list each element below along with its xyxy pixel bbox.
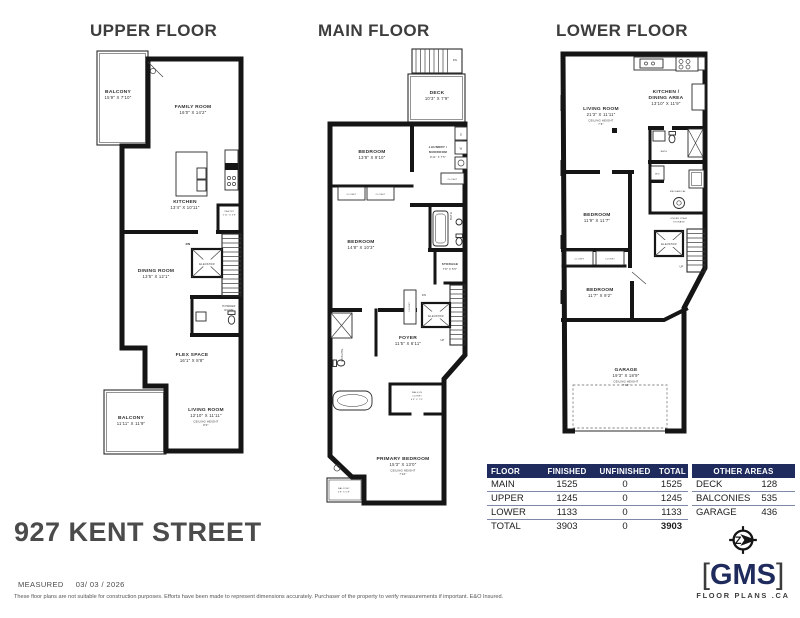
svg-text:11'7" X 9'2": 11'7" X 9'2" (588, 293, 612, 298)
disclaimer-text: These floor plans are not suitable for c… (14, 594, 503, 600)
header-cell: UNFINISHED (595, 464, 655, 478)
svg-text:STORAGE: STORAGE (673, 221, 685, 224)
room-label-under-stair-storage: UNDER STAIR (671, 217, 688, 220)
svg-text:CEILING HEIGHT: CEILING HEIGHT (193, 420, 218, 424)
main-floor-plan: DN (320, 45, 475, 510)
svg-text:2'11" X 3'8": 2'11" X 3'8" (223, 215, 236, 217)
table-row: UPPER 1245 0 1245 (487, 492, 688, 506)
svg-text:5'8" X 5'8": 5'8" X 5'8" (338, 492, 350, 494)
lower-floor-title: LOWER FLOOR (556, 21, 688, 41)
room-label-ensuite: ENSUITE (340, 348, 344, 361)
stairs-up-label: UP (440, 338, 444, 342)
bracket-right: ] (776, 558, 784, 591)
stairs-dn-label: DN (422, 293, 426, 297)
svg-text:11'5" X 6'11": 11'5" X 6'11" (395, 341, 422, 346)
svg-text:14'8" X 10'3": 14'8" X 10'3" (348, 245, 375, 250)
lower-floor-plan: UP ELEVATOR CLOSET CLOSET LIVING ROOM 21… (555, 45, 715, 445)
table-cell: 1525 (655, 478, 688, 492)
brand-tagline: FLOOR PLANS .CA (688, 591, 798, 600)
svg-text:7'6": 7'6" (598, 122, 603, 126)
svg-text:7'8" X 5'5": 7'8" X 5'5" (443, 267, 458, 271)
svg-text:CEILING HEIGHT: CEILING HEIGHT (613, 379, 638, 383)
table-header-row: OTHER AREAS (692, 464, 795, 478)
compass-icon: Z (725, 523, 761, 557)
garage-door-opening (575, 428, 665, 435)
room-label-mechanical: MECHANICAL (670, 190, 687, 193)
table-row: DECK 128 (692, 478, 795, 492)
table-cell: UPPER (487, 492, 539, 506)
closet-label: CLOSET (347, 194, 357, 196)
svg-text:13'4" X 10'11": 13'4" X 10'11" (170, 205, 199, 210)
table-cell: 1133 (539, 506, 595, 520)
table-cell: 128 (744, 478, 796, 492)
svg-text:19'3" X 18'9": 19'3" X 18'9" (613, 373, 640, 378)
laundry-appliances: D W (455, 127, 467, 169)
floor-area-table: FLOOR FINISHED UNFINISHED TOTAL MAIN 152… (487, 464, 688, 533)
measured-label: MEASURED (18, 580, 64, 589)
table-cell: 1245 (539, 492, 595, 506)
table-cell: GARAGE (692, 506, 744, 520)
svg-text:ROOM: ROOM (224, 308, 233, 312)
table-cell: 0 (595, 506, 655, 520)
table-row: GARAGE 436 (692, 506, 795, 520)
table-row: MAIN 1525 0 1525 (487, 478, 688, 492)
closet-label: CLOSET (376, 194, 386, 196)
table-row: LOWER 1133 0 1133 (487, 506, 688, 520)
svg-text:7'10": 7'10" (399, 472, 406, 476)
main-top-stairs: DN (412, 49, 462, 73)
main-balcony-walls (327, 478, 363, 502)
stairs-up-label: UP (679, 264, 683, 268)
svg-text:21'3" X 11'11": 21'3" X 11'11" (587, 112, 616, 117)
svg-text:MUDROOM: MUDROOM (429, 150, 447, 154)
room-label-laundry: LAUNDRY / (429, 145, 447, 149)
svg-text:16'1" X 8'8": 16'1" X 8'8" (180, 358, 205, 363)
room-label-storage: STORAGE (442, 262, 459, 266)
svg-text:CLOSET: CLOSET (412, 396, 422, 398)
kitchen-island-icon (176, 152, 207, 196)
bracket-left: [ (702, 558, 710, 591)
header-cell: FINISHED (539, 464, 595, 478)
property-address: 927 KENT STREET (14, 517, 262, 548)
main-elevator-label: ELEVATOR (428, 314, 443, 318)
upper-floor-title: UPPER FLOOR (90, 21, 217, 41)
other-areas-table: OTHER AREAS DECK 128 BALCONIES 535 GARAG… (692, 464, 795, 519)
stairs-dn-label: DN (186, 242, 191, 246)
svg-text:6'0" X 7'6": 6'0" X 7'6" (411, 399, 423, 401)
floor-plan-page: UPPER FLOOR MAIN FLOOR LOWER FLOOR (0, 0, 800, 618)
table-header-row: FLOOR FINISHED UNFINISHED TOTAL (487, 464, 688, 478)
svg-text:13'8" X 9'10": 13'8" X 9'10" (359, 155, 386, 160)
room-label-kitchen-dining: KITCHEN / (653, 89, 680, 95)
svg-text:9'11" X 7'5": 9'11" X 7'5" (430, 155, 446, 159)
closet-label: CLOSET (605, 259, 615, 261)
upper-floor-plan: ELEVATOR BALCONY 15'9" X 7'10" FAMILY RO… (90, 45, 250, 465)
table-cell: 3903 (655, 520, 688, 534)
room-label-powder-room: POWDER (222, 304, 235, 308)
svg-text:15'9" X 7'10": 15'9" X 7'10" (105, 95, 132, 100)
measured-date-line: MEASURED03/ 03 / 2026 (18, 580, 125, 589)
closet-label: CLOSET (575, 259, 585, 261)
table-cell: 1245 (655, 492, 688, 506)
stove-icon (225, 150, 238, 190)
svg-text:7'10": 7'10" (622, 383, 629, 387)
main-elevator: ELEVATOR (422, 303, 450, 327)
brand-wordmark: [GMS] (688, 561, 798, 590)
svg-text:11'11" X 11'9": 11'11" X 11'9" (117, 421, 146, 426)
table-cell: 0 (595, 520, 655, 534)
table-cell: 535 (744, 492, 796, 506)
table-cell: 436 (744, 506, 796, 520)
room-label-bath: BATH (661, 150, 668, 153)
table-row: BALCONIES 535 (692, 492, 795, 506)
room-label-balcony-small: BALCONY (338, 487, 350, 490)
svg-text:8'0": 8'0" (203, 423, 208, 427)
svg-text:15'3" X 13'0": 15'3" X 13'0" (390, 462, 417, 467)
svg-text:CEILING HEIGHT: CEILING HEIGHT (390, 468, 415, 472)
svg-text:12'10" X 11'11": 12'10" X 11'11" (190, 413, 222, 418)
table-row-total: TOTAL 3903 0 3903 (487, 520, 688, 534)
svg-text:13'10" X 11'9": 13'10" X 11'9" (651, 101, 680, 106)
svg-text:16'0" X 14'2": 16'0" X 14'2" (180, 110, 207, 115)
table-cell: 1133 (655, 506, 688, 520)
svg-text:CEILING HEIGHT: CEILING HEIGHT (588, 118, 613, 122)
compass-arrow (740, 534, 756, 546)
table-cell: 3903 (539, 520, 595, 534)
lower-elevator: ELEVATOR (655, 231, 683, 256)
svg-text:10'3" X 7'9": 10'3" X 7'9" (425, 96, 450, 101)
closet-label: CLOSET (409, 302, 411, 312)
main-floor-title: MAIN FLOOR (318, 21, 430, 41)
brand-name: GMS (710, 559, 776, 591)
gms-logo: Z [GMS] FLOOR PLANS .CA (688, 523, 798, 600)
upper-elevator: ELEVATOR (192, 249, 222, 277)
stairs-dn-top-label: DN (453, 58, 457, 62)
header-cell: TOTAL (655, 464, 688, 478)
dryer-label: D (460, 133, 462, 137)
lower-elevator-label: ELEVATOR (661, 242, 676, 246)
table-cell: 0 (595, 492, 655, 506)
header-cell: OTHER AREAS (692, 464, 795, 478)
room-label-bath: BATH (449, 212, 453, 220)
svg-text:11'9" X 11'7": 11'9" X 11'7" (584, 218, 611, 223)
table-cell: BALCONIES (692, 492, 744, 506)
table-cell: DECK (692, 478, 744, 492)
washer-label: W (460, 147, 463, 151)
table-cell: MAIN (487, 478, 539, 492)
upper-elevator-label: ELEVATOR (199, 262, 214, 266)
measured-date: 03/ 03 / 2026 (76, 580, 125, 589)
svg-text:13'5" X 12'1": 13'5" X 12'1" (143, 274, 170, 279)
table-cell: 0 (595, 478, 655, 492)
table-cell: LOWER (487, 506, 539, 520)
header-cell: FLOOR (487, 464, 539, 478)
table-cell: TOTAL (487, 520, 539, 534)
room-label-walkin-closet: WALK-IN (412, 391, 423, 394)
room-label-pantry: PANTRY (225, 210, 235, 213)
table-cell: 1525 (539, 478, 595, 492)
washer-dryer-label: W/D (655, 174, 660, 176)
closet-label: CLOSET (448, 179, 458, 181)
upper-outer-walls (122, 59, 241, 451)
